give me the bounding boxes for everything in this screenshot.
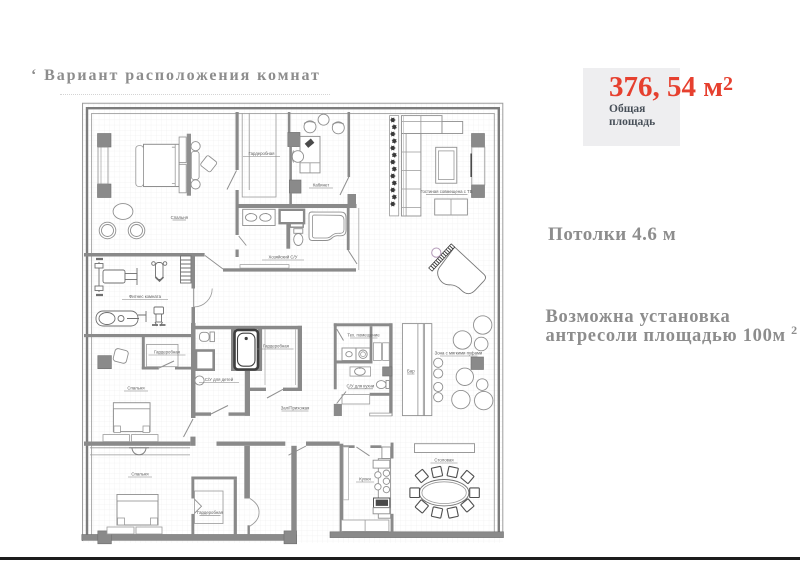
svg-text:Тех. помещение: Тех. помещение <box>347 333 380 338</box>
svg-text:Спальня: Спальня <box>171 215 189 220</box>
svg-text:Кабинет: Кабинет <box>313 183 329 188</box>
svg-text:С/У для кухни: С/У для кухни <box>347 383 375 388</box>
svg-text:Спальня: Спальня <box>127 386 145 391</box>
svg-text:Кухня: Кухня <box>359 477 371 482</box>
svg-text:Бар: Бар <box>407 369 415 374</box>
svg-text:Фитнес комната: Фитнес комната <box>129 294 162 299</box>
svg-text:Спальня: Спальня <box>131 472 149 477</box>
svg-text:Столовая: Столовая <box>434 458 454 463</box>
svg-text:Хозяйский С/У: Хозяйский С/У <box>269 255 298 260</box>
svg-text:Зона с мягкими пуфами: Зона с мягкими пуфами <box>435 351 483 356</box>
svg-text:Гардеробная: Гардеробная <box>263 344 290 349</box>
svg-text:Гардеробная: Гардеробная <box>249 151 276 156</box>
svg-text:С/У для детей: С/У для детей <box>205 377 234 382</box>
svg-text:Гостиная совмещена с ТВ: Гостиная совмещена с ТВ <box>420 189 472 194</box>
svg-text:Зал/Прихожая: Зал/Прихожая <box>281 406 310 411</box>
svg-text:Гардеробная: Гардеробная <box>154 350 181 355</box>
svg-text:Гардеробная: Гардеробная <box>197 510 224 515</box>
